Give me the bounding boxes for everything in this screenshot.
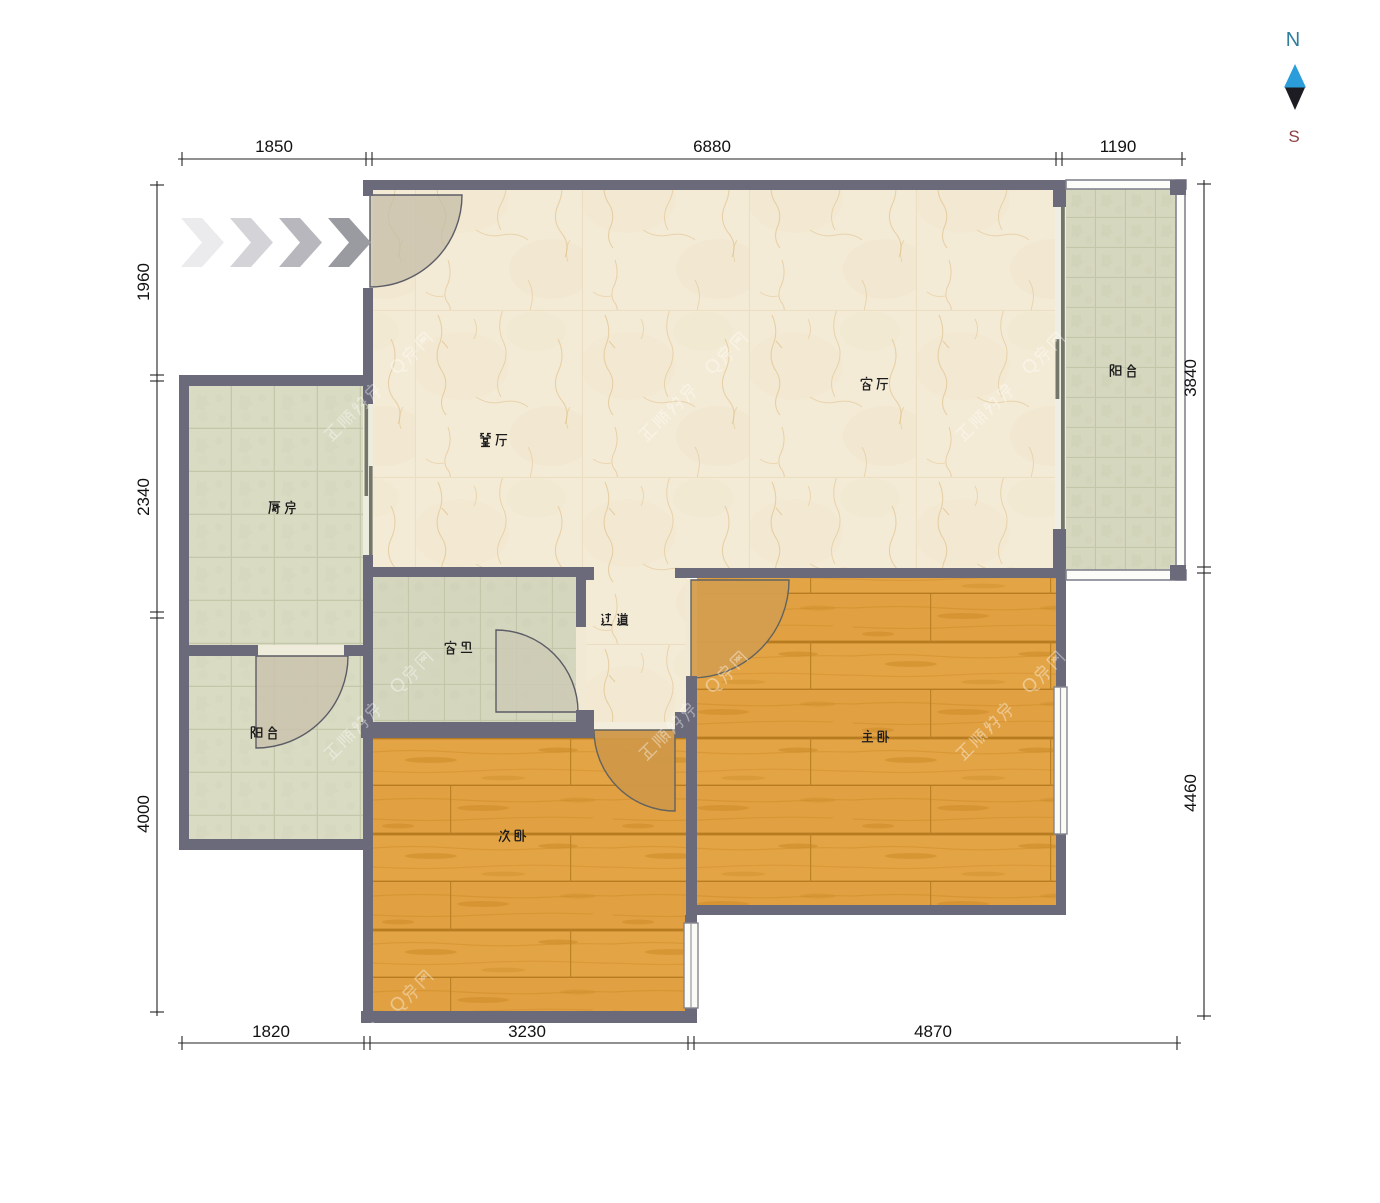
svg-text:4000: 4000: [134, 795, 153, 833]
svg-text:1850: 1850: [255, 137, 293, 156]
svg-text:2340: 2340: [134, 478, 153, 516]
svg-text:1960: 1960: [134, 263, 153, 301]
svg-text:4870: 4870: [914, 1022, 952, 1041]
svg-text:1190: 1190: [1100, 137, 1137, 156]
svg-text:6880: 6880: [693, 137, 731, 156]
svg-text:3840: 3840: [1181, 359, 1200, 397]
svg-text:1820: 1820: [252, 1022, 290, 1041]
svg-text:3230: 3230: [508, 1022, 546, 1041]
svg-text:4460: 4460: [1181, 774, 1200, 812]
svg-text:N: N: [1286, 29, 1300, 51]
svg-text:S: S: [1288, 127, 1299, 146]
